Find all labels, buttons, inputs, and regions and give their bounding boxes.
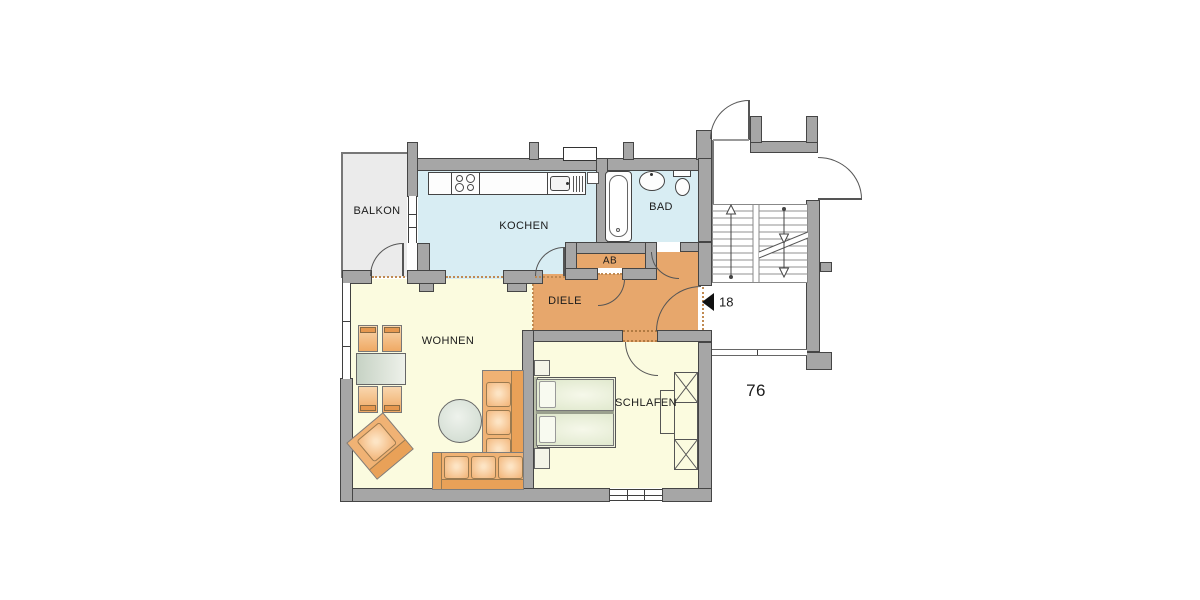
nightstand xyxy=(534,360,550,376)
open-boundary xyxy=(446,276,503,278)
balcony-railing xyxy=(341,152,343,278)
wall-pillar xyxy=(806,116,818,143)
sofa xyxy=(482,370,524,460)
open-boundary xyxy=(532,284,534,330)
room-label-ab: AB xyxy=(603,256,617,267)
open-boundary xyxy=(535,276,565,278)
window xyxy=(408,196,417,243)
stairwell-wall-line xyxy=(712,140,714,205)
room-label-wohnen: WOHNEN xyxy=(422,335,475,347)
window xyxy=(342,283,351,379)
nightstand xyxy=(534,448,550,469)
wall-segment xyxy=(698,242,712,286)
dining-table xyxy=(356,353,406,385)
door-leaf xyxy=(563,247,565,276)
wall-segment xyxy=(657,330,712,342)
faucet-icon xyxy=(650,173,653,176)
apartment-number: 18 xyxy=(719,295,733,310)
room-label-kochen: KOCHEN xyxy=(499,220,548,232)
wall-pier-stem xyxy=(419,283,434,292)
wall-segment xyxy=(698,158,712,242)
window xyxy=(610,489,662,501)
door-arc-stairwell-top xyxy=(710,100,749,139)
wall-segment xyxy=(565,268,598,280)
wall-segment xyxy=(407,158,712,171)
stairwell-window xyxy=(712,349,807,356)
entrance-arrow-icon xyxy=(702,293,714,311)
wall-segment xyxy=(622,268,657,280)
wardrobe xyxy=(674,372,698,470)
shaft-box xyxy=(563,147,597,161)
wall-pier xyxy=(342,270,372,284)
burner-icon xyxy=(455,183,464,192)
room-label-diele: DIELE xyxy=(548,295,582,307)
wall-pillar xyxy=(750,116,762,143)
wall-pier-stem xyxy=(507,283,527,292)
wall-pillar xyxy=(623,142,634,160)
chair xyxy=(382,325,402,352)
wall-pier xyxy=(407,270,446,284)
wall-nub xyxy=(820,262,832,272)
pillow xyxy=(539,381,556,408)
duct-box xyxy=(587,172,599,184)
bed-split xyxy=(536,411,614,414)
wall-segment xyxy=(565,242,657,254)
chair xyxy=(358,386,378,413)
chair xyxy=(382,386,402,413)
faucet-icon xyxy=(566,182,569,185)
staircase xyxy=(712,204,808,283)
pillow xyxy=(539,416,556,443)
burner-icon xyxy=(456,175,463,182)
room-label-balkon: BALKON xyxy=(353,205,400,217)
toilet-tank xyxy=(673,170,691,177)
floor-area-number: 76 xyxy=(746,381,766,401)
door-leaf xyxy=(748,100,750,140)
toilet-icon xyxy=(675,178,690,196)
door-leaf xyxy=(402,243,404,276)
door-leaf xyxy=(818,198,862,200)
wall-pillar xyxy=(529,142,539,160)
wall-segment xyxy=(662,488,712,502)
room-label-schlafen: SCHLAFEN xyxy=(615,397,677,409)
open-boundary xyxy=(598,273,622,275)
sink-drainer xyxy=(573,176,584,192)
floor-plan: BALKON KOCHEN BAD AB DIELE WOHNEN SCHLAF… xyxy=(0,0,1200,600)
balcony-railing xyxy=(341,152,408,154)
wall-segment xyxy=(806,200,820,352)
wall-segment xyxy=(522,330,623,342)
door-arc-building-entrance xyxy=(818,157,862,199)
round-table xyxy=(438,399,482,443)
wall-segment xyxy=(407,142,418,197)
wall-segment xyxy=(340,488,610,502)
sofa xyxy=(432,452,524,490)
burner-icon xyxy=(466,174,475,183)
room-label-bad: BAD xyxy=(649,201,673,213)
open-boundary xyxy=(372,276,405,278)
burner-icon xyxy=(467,184,474,191)
wall-segment xyxy=(806,352,832,370)
wall-segment xyxy=(698,342,712,500)
stairwell-threshold xyxy=(713,139,749,141)
drain-icon xyxy=(616,228,620,232)
bedroom-door-threshold xyxy=(623,330,657,342)
chair xyxy=(358,325,378,352)
